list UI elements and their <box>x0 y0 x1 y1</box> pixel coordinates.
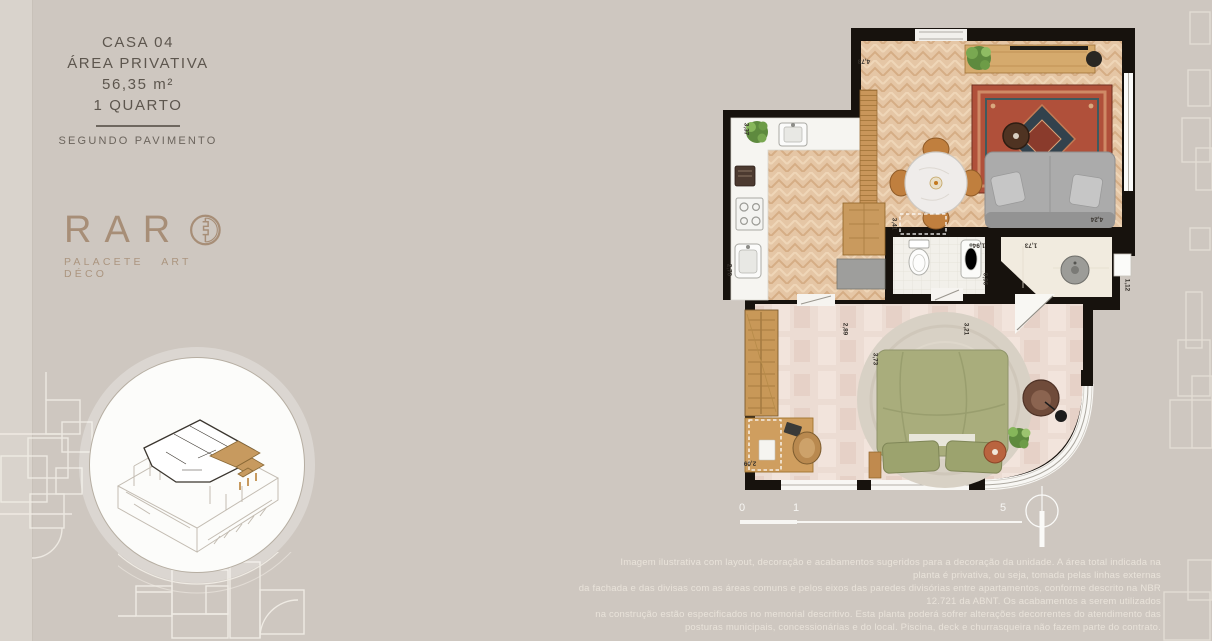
scale-five: 5 <box>1000 502 1006 514</box>
area-label: ÁREA PRIVATIVA <box>58 53 218 74</box>
pillow <box>882 441 939 474</box>
floor-plan-drawing: 4,78 3,37 2,70 3,41 4,24 1,94 0,96 1,73 … <box>723 28 1135 490</box>
dim-wc-width: 1,73 <box>1024 241 1037 248</box>
dim-bedroom-width: 3,73 <box>871 353 878 366</box>
coffee-machine <box>735 166 755 186</box>
speaker-icon <box>1086 51 1102 67</box>
kitchen-sink <box>779 123 807 146</box>
scale-zero: 0 <box>739 502 745 514</box>
header-divider <box>96 125 180 127</box>
logo-o-icon <box>187 210 224 250</box>
wc-window <box>1114 254 1131 276</box>
building-location-inset <box>89 357 305 573</box>
cooktop <box>736 198 763 230</box>
toilet-icon <box>909 240 929 275</box>
disclaimer-line: na construção estão especificados no mem… <box>560 608 1161 621</box>
unit-name: CASA 04 <box>58 32 218 53</box>
disclaimer-line: Imagem ilustrativa com layout, decoração… <box>560 556 1161 569</box>
disclaimer-line: 12.721 da ABNT. Os acabamentos a serem u… <box>560 595 1161 608</box>
dim-bedroom-east: 3,21 <box>962 323 969 336</box>
dim-dining: 3,41 <box>890 218 897 231</box>
bedside-bench <box>869 452 881 478</box>
scale-line-segment <box>740 520 797 524</box>
dim-bath-width: 1,94 <box>972 241 985 248</box>
dim-living-height: 4,24 <box>1090 215 1103 222</box>
disclaimer-line: planta é privativa, ou seja, tomada pela… <box>560 569 1161 582</box>
scale-bar: 0 1 5 <box>723 500 1135 530</box>
dim-desk-width: 2,09 <box>743 459 756 466</box>
wardrobe <box>745 310 778 416</box>
dim-bedroom-west: 2,89 <box>841 323 848 336</box>
bedrooms-label: 1 QUARTO <box>58 95 218 116</box>
dim-wc-depth: 1,12 <box>1123 279 1130 292</box>
hall-cabinet <box>837 203 885 289</box>
tv-icon <box>1010 46 1088 50</box>
area-value: 56,35 m² <box>58 74 218 95</box>
dim-bath-depth: 0,96 <box>981 273 988 286</box>
brand-logo: RAR PALACETE ART DÉCO <box>64 210 224 280</box>
isometric-building-icon <box>90 358 304 572</box>
unit-header: CASA 04 ÁREA PRIVATIVA 56,35 m² 1 QUARTO… <box>58 32 218 147</box>
dim-kitchen-height: 2,70 <box>725 264 732 277</box>
round-basin <box>1061 256 1089 284</box>
scale-one: 1 <box>793 502 799 514</box>
radiator-shelf <box>860 90 877 218</box>
disclaimer-line: da fachada e das divisas com as áreas co… <box>560 582 1161 595</box>
dim-kitchen-width: 3,37 <box>742 123 749 136</box>
dim-living-width: 4,78 <box>857 57 870 64</box>
left-accent-strip <box>0 0 33 641</box>
disclaimer-line: posturas municipais, concessionárias e d… <box>560 621 1161 634</box>
side-table <box>984 441 1006 463</box>
floor-lamp-icon <box>1055 410 1067 422</box>
north-arrow-icon <box>1020 484 1064 552</box>
floor-label: SEGUNDO PAVIMENTO <box>58 135 218 147</box>
tv-console <box>965 45 1102 73</box>
logo-letters: RAR <box>64 210 183 250</box>
floor-plan: 4,78 3,37 2,70 3,41 4,24 1,94 0,96 1,73 … <box>723 28 1135 490</box>
floorplan-page: CASA 04 ÁREA PRIVATIVA 56,35 m² 1 QUARTO… <box>0 0 1212 641</box>
logo-tagline: PALACETE ART DÉCO <box>64 256 224 280</box>
art-deco-pattern-right <box>1142 0 1212 641</box>
legal-disclaimer: Imagem ilustrativa com layout, decoração… <box>560 556 1161 634</box>
prep-sink <box>735 244 761 278</box>
